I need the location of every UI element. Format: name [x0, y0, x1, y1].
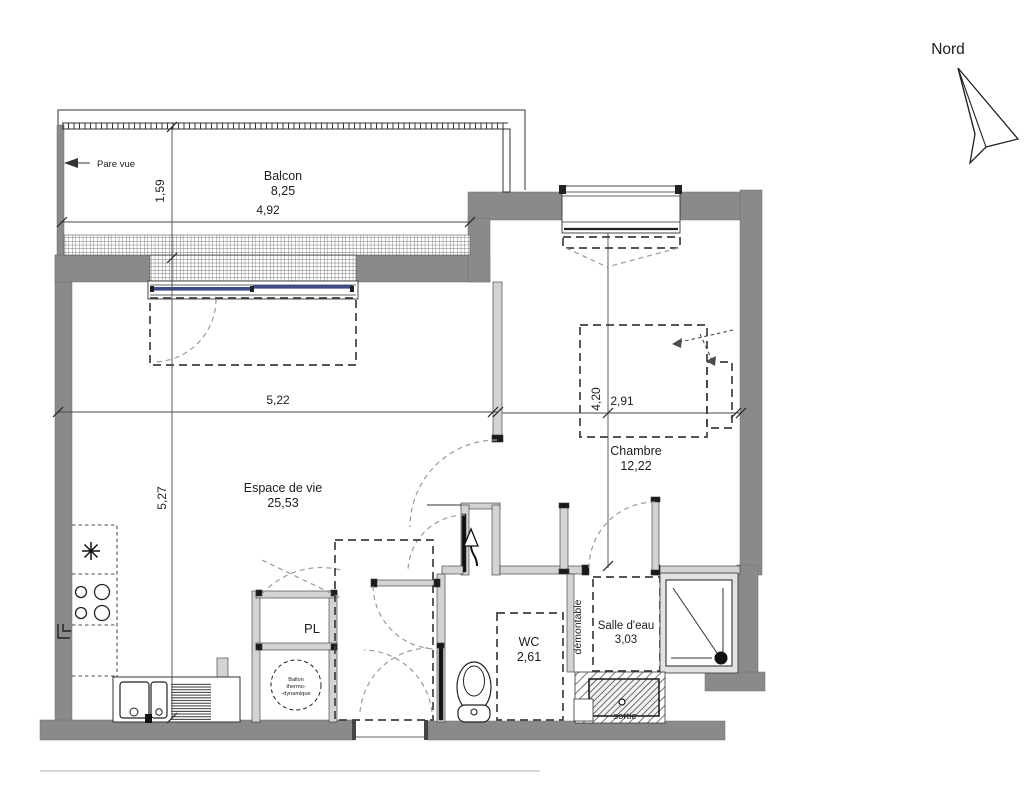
water-heater-line3: -dynamique: [281, 691, 310, 697]
hall-door-swing-2: [364, 650, 432, 712]
bathroom-area: 3,03: [615, 634, 637, 646]
south-wall-opening: [352, 720, 428, 740]
bedroom-corridor-stub: [560, 505, 568, 573]
shower-drain: [715, 652, 728, 665]
north-arrow-icon: [958, 68, 1018, 163]
dim-living-width: 5,22: [266, 393, 290, 407]
balcony-name: Balcon: [264, 169, 302, 183]
sink-drainer: [171, 683, 211, 720]
bedroom-door-leaf: [652, 500, 659, 572]
closet-north-wall: [256, 591, 337, 598]
dim-bedroom-depth: 4,20: [589, 387, 603, 411]
toilet: [457, 662, 491, 722]
balcony-west-wall: [57, 125, 64, 255]
living-name: Espace de vie: [244, 481, 323, 495]
bedroom-window: [559, 185, 682, 267]
bedroom-north-wall-left: [468, 192, 568, 220]
window-threshold-grating: [150, 255, 356, 281]
closet-label: PL: [304, 621, 320, 636]
wardrobe-outline: [707, 362, 732, 428]
dim-balcony-depth: 1,59: [153, 179, 167, 203]
balcony-railing: [62, 123, 508, 129]
closet-west-wall: [252, 591, 260, 722]
water-heater-line1: Ballon: [288, 677, 304, 683]
closet-door-swing: [262, 568, 341, 594]
window-opening-lines: [566, 248, 678, 267]
southeast-wall-block: [705, 672, 765, 691]
south-wall-left: [40, 720, 354, 740]
hall-door-swing-1: [360, 648, 428, 712]
north-label: Nord: [931, 41, 965, 58]
window-clearance-zone: [150, 298, 356, 365]
outlet-label: sortie: [613, 711, 636, 722]
bedroom-name: Chambre: [610, 444, 661, 458]
north-indicator: Nord: [931, 41, 1018, 163]
east-wall-upper: [740, 190, 762, 575]
closets: PL Ballon thermo- -dynamique: [271, 621, 321, 710]
wardrobe-arrow-icon: [672, 338, 682, 348]
balcony-east-screen: [503, 129, 510, 192]
kitchen: [58, 525, 240, 723]
entry-door-swing: [408, 515, 465, 572]
hob-burners: [76, 585, 110, 621]
bathroom-name: Salle d'eau: [598, 620, 655, 632]
balcony-floor-grating: [64, 235, 470, 255]
wc-zone: [497, 613, 563, 720]
balcony-area: 8,25: [271, 184, 295, 198]
window-sill-zone: [563, 237, 680, 248]
closet-mid-wall: [256, 643, 337, 650]
east-wall-lower: [737, 565, 758, 675]
window-swing-arc: [153, 299, 216, 362]
sink-faucet: [145, 714, 152, 723]
wc-door-leaf: [439, 648, 443, 720]
pare-vue-arrow-icon: [64, 158, 78, 168]
fridge-star-icon: [82, 542, 100, 560]
living-area: 25,53: [267, 496, 298, 510]
bed-outline: [580, 325, 707, 437]
bedroom-area: 12,22: [620, 459, 651, 473]
shower: [660, 573, 738, 673]
bedroom-door-swing: [589, 502, 655, 568]
bedroom-west-wall-stub: [468, 218, 490, 282]
south-wall-right: [428, 721, 725, 740]
bedroom-north-wall-right: [678, 192, 740, 220]
living-bedroom-partition: [493, 282, 502, 437]
floor-plan-page: Pare vue Balcon 8,25: [0, 0, 1033, 800]
dim-living-depth: 5,27: [155, 486, 169, 510]
demountable-label: démontable: [572, 599, 584, 654]
wc-name: WC: [519, 635, 540, 649]
hall-door-swing-3: [373, 586, 437, 649]
dim-balcony-width: 4,92: [256, 203, 280, 217]
vanity-outlet: [619, 699, 625, 705]
living-north-wall-left: [55, 255, 150, 282]
entry-niche-east: [492, 505, 500, 575]
dim-bedroom-width: 2,91: [610, 394, 634, 408]
living-bedroom-door-swing: [410, 440, 497, 527]
hall-demountable-zone: [335, 540, 433, 720]
west-wall: [55, 255, 72, 722]
vanity: sortie: [574, 672, 665, 723]
pare-vue-label: Pare vue: [97, 159, 135, 170]
water-heater-line2: thermo-: [286, 684, 305, 690]
hall-door-leaf: [373, 580, 437, 586]
wc-area: 2,61: [517, 650, 541, 664]
floor-plan-drawing: Pare vue Balcon 8,25: [0, 0, 1033, 800]
living-bay-window: [148, 281, 358, 365]
